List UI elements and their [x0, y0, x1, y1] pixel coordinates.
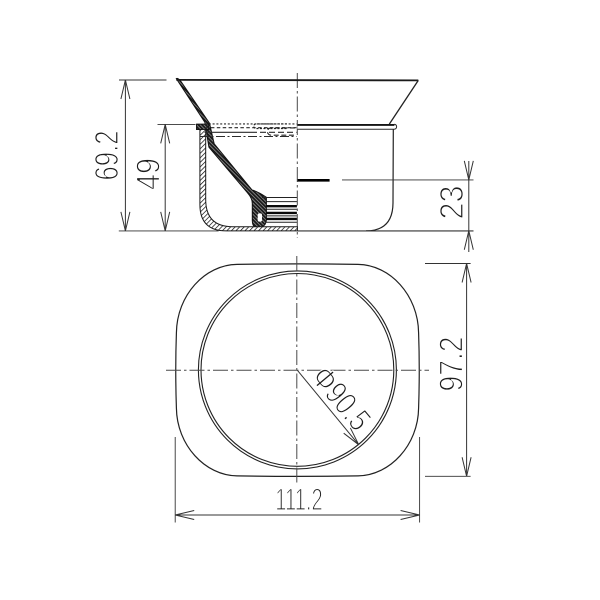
svg-text:49: 49 — [130, 158, 167, 190]
svg-text:111.2: 111.2 — [275, 482, 323, 517]
svg-text:23: 23 — [433, 186, 470, 220]
svg-text:69.2: 69.2 — [88, 131, 125, 181]
svg-text:97.2: 97.2 — [433, 337, 470, 392]
